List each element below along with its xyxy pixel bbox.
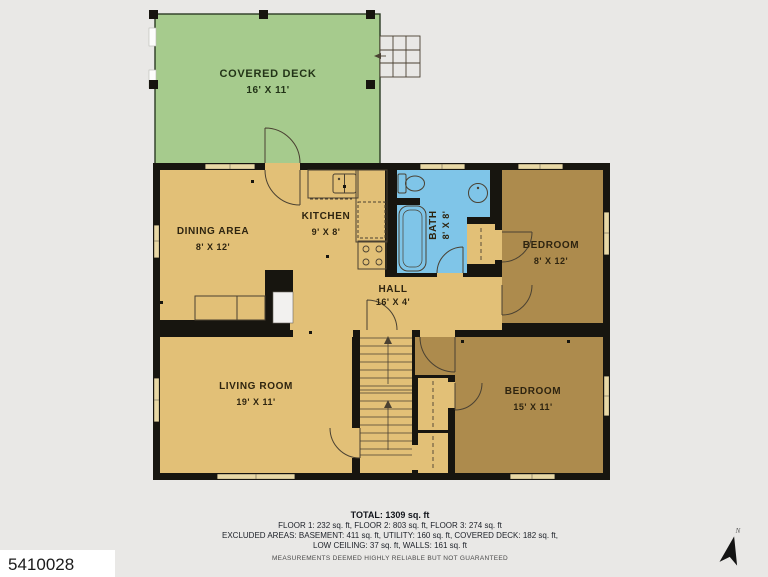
total-sqft: TOTAL: 1309 sq. ft xyxy=(351,510,430,520)
kitchen-faucet xyxy=(338,178,340,180)
north-arrow-icon: N xyxy=(719,527,742,566)
bedroom1-door-opening xyxy=(495,285,502,313)
bath-partition-wall xyxy=(397,198,420,205)
excluded-areas-line2: LOW CEILING: 37 sq. ft, WALLS: 161 sq. f… xyxy=(313,541,468,550)
window xyxy=(420,164,465,170)
north-arrow-glyph xyxy=(719,534,742,565)
bath-dims: 8' X 8' xyxy=(441,211,451,240)
deck-rail-slot xyxy=(149,28,156,46)
bedroom2-door-opening xyxy=(420,330,455,337)
hall-dims: 16' X 4' xyxy=(376,297,410,307)
bedroom1-dims: 8' X 12' xyxy=(534,256,568,266)
wall-stub xyxy=(265,270,293,292)
stairwell-floor xyxy=(360,330,412,473)
bath-label: BATH xyxy=(428,210,439,239)
footer-summary: TOTAL: 1309 sq. ft FLOOR 1: 232 sq. ft, … xyxy=(222,510,558,562)
dining-label: DINING AREA xyxy=(177,226,249,237)
deck-dims: 16' X 11' xyxy=(246,85,289,96)
kitchen-dims: 9' X 8' xyxy=(312,227,341,237)
bedroom2-dims: 15' X 11' xyxy=(513,402,552,412)
dining-dims: 8' X 12' xyxy=(196,242,230,252)
excluded-areas-line1: EXCLUDED AREAS: BASEMENT: 411 sq. ft, UT… xyxy=(222,531,558,540)
deck-stairs xyxy=(374,36,420,77)
bath-door-opening xyxy=(437,273,463,280)
closet2-door-opening xyxy=(448,382,455,408)
kitchen-label: KITCHEN xyxy=(302,211,351,222)
floors-sqft: FLOOR 1: 232 sq. ft, FLOOR 2: 803 sq. ft… xyxy=(278,521,502,530)
hall-living-opening xyxy=(293,330,353,337)
living-dims: 19' X 11' xyxy=(236,397,275,407)
window xyxy=(604,212,610,255)
north-label: N xyxy=(735,527,741,535)
listing-id: 5410028 xyxy=(8,555,74,574)
stairs-living-door-opening xyxy=(352,428,360,458)
bedroom2-label: BEDROOM xyxy=(505,386,561,397)
wall-stub xyxy=(265,292,273,327)
bedroom2-entry-nook-floor xyxy=(415,337,455,375)
listing-id-badge: 5410028 xyxy=(0,550,115,577)
deck-door-opening xyxy=(265,163,300,170)
bath-sink-nook-floor xyxy=(460,170,490,217)
covered-deck: COVERED DECK 16' X 11' xyxy=(149,10,420,166)
window xyxy=(518,164,563,170)
window xyxy=(154,225,160,258)
deck-label: COVERED DECK xyxy=(219,68,316,80)
bedroom1-label: BEDROOM xyxy=(523,240,579,251)
utility-chase xyxy=(273,292,293,323)
floor-plan-page: COVERED DECK 16' X 11' xyxy=(0,0,768,577)
floor-plan-drawing: COVERED DECK 16' X 11' xyxy=(0,0,768,577)
hall-label: HALL xyxy=(378,284,407,295)
disclaimer: MEASUREMENTS DEEMED HIGHLY RELIABLE BUT … xyxy=(272,555,508,562)
bath-faucet xyxy=(477,187,479,189)
living-label: LIVING ROOM xyxy=(219,381,293,392)
closet3-opening xyxy=(412,445,418,470)
window xyxy=(510,474,555,480)
closet1-door-opening xyxy=(495,230,502,260)
